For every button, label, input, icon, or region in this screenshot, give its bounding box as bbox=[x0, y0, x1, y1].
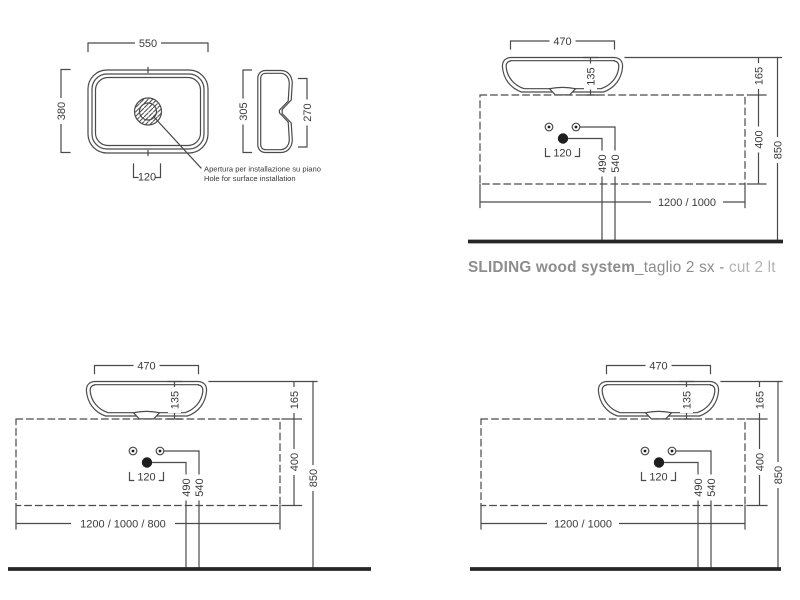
dim-fixing-spacing-label: 120 bbox=[553, 148, 571, 160]
dim-label: 1200 / 1000 / 800 bbox=[80, 519, 166, 531]
dim-label: 1200 / 1000 bbox=[658, 197, 716, 209]
dim-label: 135 bbox=[586, 67, 598, 85]
dim-console-lengths: 1200 / 1000 bbox=[480, 184, 745, 209]
dim-label: 400 bbox=[754, 130, 766, 148]
dim-rim-above-console: 165 bbox=[721, 382, 782, 420]
dim-label: 470 bbox=[649, 361, 667, 373]
dim-label: 270 bbox=[302, 103, 314, 121]
dim-basin-width: 470 bbox=[511, 35, 615, 50]
dim-label: 400 bbox=[289, 453, 301, 471]
dim-label: 400 bbox=[755, 453, 767, 471]
dim-console-lengths: 1200 / 1000 / 800 bbox=[16, 506, 280, 531]
dim-console-lengths: 1200 / 1000 bbox=[481, 506, 745, 531]
elevation-top-right: 120 470 135 490 540 bbox=[468, 35, 785, 242]
dim-fixing-spacing-label: 120 bbox=[137, 472, 155, 484]
caption-product-name: SLIDING wood system bbox=[468, 259, 635, 276]
side-view-panel: 305 270 bbox=[237, 70, 315, 153]
dim-side-height-total: 305 bbox=[237, 70, 252, 153]
dim-label: 470 bbox=[137, 361, 155, 373]
dim-mixer-height: 490 bbox=[665, 463, 706, 570]
dim-total-height: 850 bbox=[307, 382, 321, 570]
dim-label: 120 bbox=[138, 172, 156, 184]
dim-label: 165 bbox=[755, 391, 767, 409]
dim-label: 380 bbox=[56, 102, 68, 120]
dim-label: 165 bbox=[754, 67, 766, 85]
basin-front-view bbox=[502, 58, 622, 95]
caption-cut-english: cut 2 lt bbox=[729, 259, 776, 276]
dim-mixer-height: 490 bbox=[569, 139, 610, 242]
dim-plan-depth: 380 bbox=[55, 70, 71, 153]
technical-drawing: Apertura per installazione su piano Hole… bbox=[0, 0, 800, 600]
basin-front-view bbox=[86, 382, 206, 419]
dim-label: 165 bbox=[289, 391, 301, 409]
dim-label: 490 bbox=[693, 478, 705, 496]
dim-total-height: 850 bbox=[771, 58, 785, 242]
dim-label: 550 bbox=[139, 38, 157, 50]
dim-fixings-height: 540 bbox=[165, 451, 207, 569]
dim-rim-above-console: 165 bbox=[625, 58, 782, 96]
dim-side-height-inner: 270 bbox=[299, 79, 315, 148]
dim-fixings-height: 540 bbox=[677, 451, 719, 569]
leader-line bbox=[154, 117, 202, 169]
dim-label: 135 bbox=[682, 391, 694, 409]
dim-label: 135 bbox=[170, 391, 182, 409]
drawing-sheet: Apertura per installazione su piano Hole… bbox=[0, 0, 800, 600]
dim-label: 470 bbox=[553, 36, 571, 48]
product-caption: SLIDING wood system_taglio 2 sx - cut 2 … bbox=[468, 259, 776, 276]
hole-note-english: Hole for surface installation bbox=[204, 174, 296, 183]
hole-note-italian: Apertura per installazione su piano bbox=[204, 165, 321, 174]
dim-label: 1200 / 1000 bbox=[554, 519, 612, 531]
dim-label: 850 bbox=[773, 466, 785, 484]
dim-plan-width: 550 bbox=[88, 37, 208, 52]
dim-mixer-height: 490 bbox=[153, 463, 194, 570]
dim-label: 490 bbox=[597, 154, 609, 172]
dim-console-height: 400 bbox=[747, 419, 767, 506]
dim-console-height: 400 bbox=[282, 419, 302, 506]
elevation-bottom-left: 120 470 135 490 540 bbox=[8, 359, 371, 569]
dim-basin-width: 470 bbox=[607, 359, 711, 374]
dim-rim-above-console: 165 bbox=[209, 382, 317, 420]
dim-label: 305 bbox=[238, 102, 250, 120]
caption-cut-italian: _taglio 2 sx - bbox=[634, 259, 729, 276]
dim-total-height: 850 bbox=[772, 382, 786, 570]
elevation-bottom-right: 120 470 135 490 540 bbox=[470, 359, 785, 569]
dim-fixing-spacing-label: 120 bbox=[649, 472, 667, 484]
dim-label: 540 bbox=[706, 478, 718, 496]
dim-label: 850 bbox=[308, 469, 320, 487]
dim-label: 850 bbox=[773, 141, 785, 159]
dim-plan-hole-offset: 120 bbox=[134, 164, 161, 184]
basin-front-view bbox=[598, 382, 718, 419]
dim-label: 540 bbox=[194, 478, 206, 496]
dim-console-height: 400 bbox=[748, 95, 767, 184]
dim-basin-width: 470 bbox=[95, 359, 199, 374]
basin-side-outline bbox=[258, 71, 293, 153]
dim-label: 490 bbox=[181, 478, 193, 496]
dim-label: 540 bbox=[610, 154, 622, 172]
